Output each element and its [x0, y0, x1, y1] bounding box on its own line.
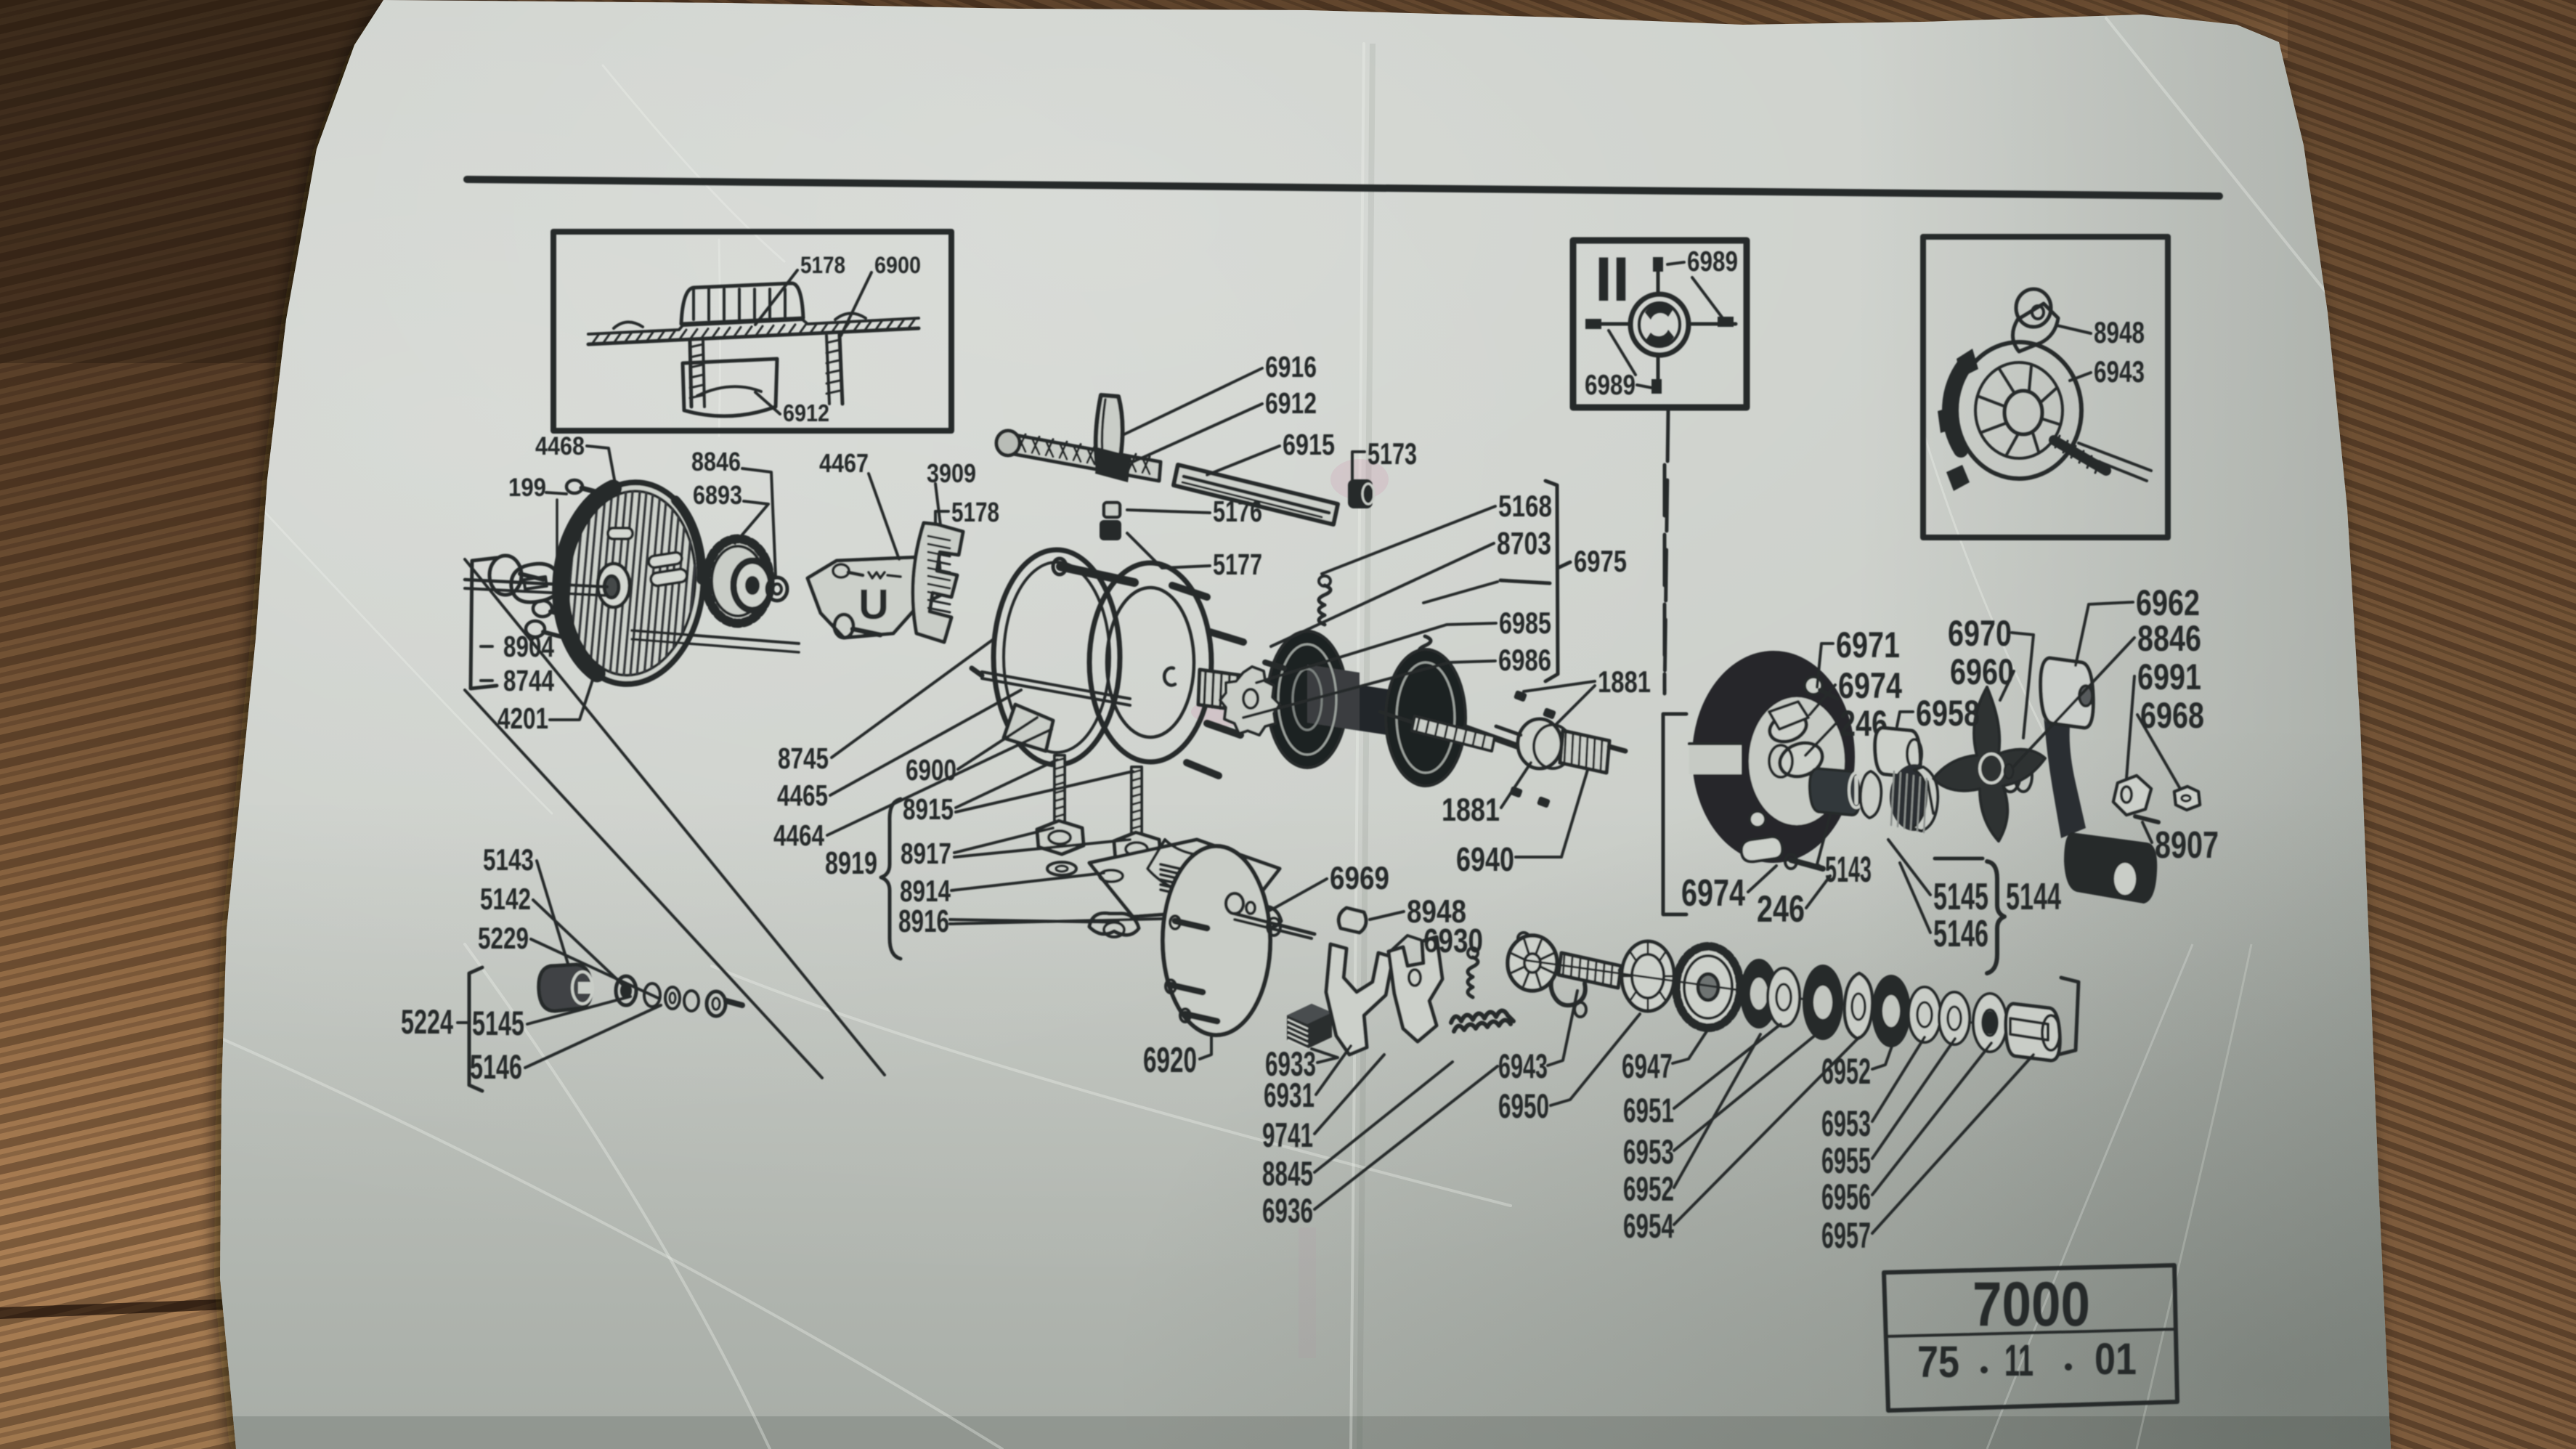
svg-text:6957: 6957 [1821, 1214, 1871, 1256]
svg-text:8845: 8845 [1262, 1155, 1313, 1193]
svg-text:8907: 8907 [2155, 824, 2219, 866]
svg-text:9741: 9741 [1262, 1116, 1313, 1155]
svg-text:6954: 6954 [1623, 1207, 1674, 1246]
svg-text:5145: 5145 [472, 1004, 524, 1043]
svg-text:6893: 6893 [693, 480, 742, 510]
svg-text:6958: 6958 [1916, 692, 1980, 734]
svg-text:6931: 6931 [1264, 1076, 1315, 1115]
svg-text:5178: 5178 [800, 252, 845, 278]
svg-text:6953: 6953 [1821, 1103, 1871, 1144]
svg-text:6900: 6900 [906, 753, 956, 787]
svg-text:6916: 6916 [1265, 350, 1317, 383]
svg-text:5229: 5229 [478, 921, 529, 955]
svg-text:5143: 5143 [483, 843, 534, 877]
svg-text:5143: 5143 [1825, 848, 1872, 890]
svg-text:4464: 4464 [773, 819, 824, 852]
svg-text:8916: 8916 [898, 904, 949, 939]
svg-text:8745: 8745 [778, 742, 829, 775]
svg-text:6900: 6900 [874, 252, 921, 278]
svg-text:4468: 4468 [535, 432, 585, 460]
svg-text:1881: 1881 [1442, 792, 1500, 828]
svg-text:199: 199 [508, 474, 546, 502]
svg-text:01: 01 [2094, 1334, 2137, 1384]
svg-text:6974: 6974 [1681, 872, 1745, 914]
svg-text:1881: 1881 [1598, 665, 1651, 699]
svg-text:5176: 5176 [1213, 495, 1262, 528]
svg-text:11: 11 [2004, 1336, 2033, 1386]
svg-text:6960: 6960 [1950, 651, 2014, 692]
svg-text:5144: 5144 [2006, 875, 2061, 917]
svg-text:8919: 8919 [825, 846, 877, 881]
svg-text:246: 246 [1757, 888, 1805, 930]
svg-text:6943: 6943 [2094, 354, 2145, 389]
svg-text:5142: 5142 [480, 882, 531, 916]
svg-text:6920: 6920 [1143, 1041, 1197, 1080]
svg-text:6943: 6943 [1498, 1047, 1548, 1086]
svg-text:6936: 6936 [1262, 1192, 1313, 1230]
svg-text:6955: 6955 [1821, 1140, 1871, 1181]
svg-text:8948: 8948 [2094, 315, 2145, 349]
svg-text:7000: 7000 [1972, 1270, 2090, 1339]
svg-text:8917: 8917 [901, 837, 951, 870]
svg-text:8846: 8846 [691, 447, 741, 476]
svg-text:6970: 6970 [1948, 612, 2012, 654]
svg-text:6950: 6950 [1498, 1087, 1549, 1126]
svg-text:6951: 6951 [1623, 1092, 1674, 1130]
svg-text:II: II [1595, 245, 1630, 314]
svg-text:6975: 6975 [1574, 544, 1627, 578]
svg-text:6991: 6991 [2137, 656, 2201, 697]
svg-text:6947: 6947 [1622, 1047, 1673, 1086]
svg-text:5173: 5173 [1368, 437, 1417, 471]
svg-text:8846: 8846 [2137, 617, 2201, 659]
svg-text:8703: 8703 [1497, 527, 1551, 561]
svg-text:6989: 6989 [1585, 370, 1636, 401]
svg-text:4201: 4201 [497, 702, 548, 735]
svg-text:5146: 5146 [470, 1048, 522, 1087]
svg-text:6912: 6912 [1265, 386, 1317, 420]
svg-text:5146: 5146 [1933, 912, 1988, 954]
svg-text:6985: 6985 [1499, 606, 1551, 640]
svg-text:5178: 5178 [951, 497, 999, 527]
svg-text:4467: 4467 [819, 448, 869, 478]
svg-text:6956: 6956 [1821, 1176, 1871, 1217]
svg-text:5145: 5145 [1933, 875, 1988, 917]
svg-text:6953: 6953 [1623, 1133, 1674, 1172]
svg-text:75: 75 [1917, 1337, 1959, 1387]
svg-text:6940: 6940 [1456, 840, 1514, 878]
svg-text:5168: 5168 [1498, 489, 1552, 523]
svg-text:6986: 6986 [1498, 643, 1551, 677]
svg-text:6971: 6971 [1836, 624, 1900, 665]
svg-text:5224: 5224 [401, 1003, 453, 1042]
svg-text:U: U [858, 581, 889, 628]
svg-text:6974: 6974 [1838, 665, 1902, 706]
svg-text:6969: 6969 [1330, 861, 1389, 896]
svg-text:6968: 6968 [2140, 694, 2204, 736]
svg-text:8914: 8914 [900, 874, 951, 908]
svg-text:5177: 5177 [1213, 548, 1262, 581]
svg-text:6912: 6912 [783, 400, 829, 427]
svg-text:6989: 6989 [1687, 246, 1738, 277]
svg-text:8744: 8744 [503, 664, 554, 697]
svg-text:6915: 6915 [1283, 428, 1335, 461]
svg-text:4465: 4465 [777, 779, 828, 812]
svg-text:6952: 6952 [1821, 1050, 1871, 1092]
svg-text:6952: 6952 [1623, 1170, 1674, 1209]
svg-text:6930: 6930 [1423, 922, 1483, 959]
